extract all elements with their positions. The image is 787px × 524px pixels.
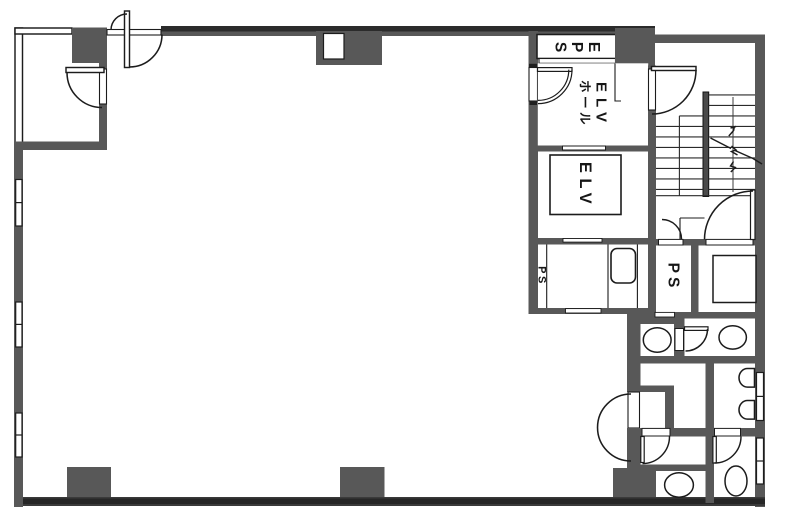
svg-text:ELV: ELV	[576, 162, 594, 209]
svg-text:ELV: ELV	[593, 82, 610, 128]
svg-text:S: S	[552, 42, 569, 52]
svg-text:ホール: ホール	[578, 80, 592, 128]
svg-text:PS: PS	[536, 266, 548, 286]
svg-text:P: P	[568, 42, 585, 52]
svg-text:E: E	[585, 42, 602, 52]
svg-text:PS: PS	[665, 263, 682, 292]
